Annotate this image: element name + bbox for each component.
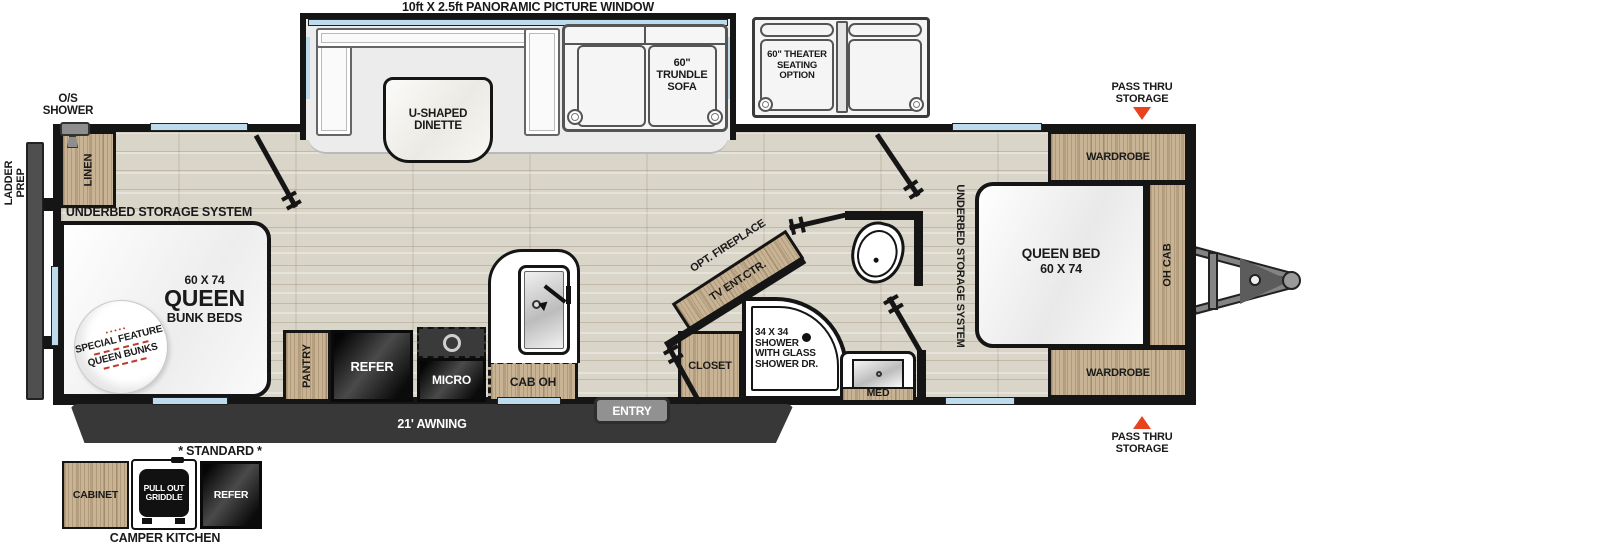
entry-step: ENTRY: [594, 397, 670, 424]
refrigerator: REFER: [331, 330, 413, 402]
underbed-storage-label-bedroom: UNDERBED STORAGE SYSTEM: [950, 180, 966, 352]
entry-label: ENTRY: [612, 404, 651, 418]
pass-thru-top-arrow-icon: [1133, 107, 1151, 120]
sofa-recline-knob-left: [567, 109, 583, 125]
pass-thru-top-label: PASS THRU STORAGE: [1090, 82, 1194, 105]
theater-seating: 60" THEATER SEATING OPTION: [752, 17, 930, 118]
theater-headrest-right: [848, 23, 922, 37]
bath-wall-top: [845, 211, 921, 220]
griddle-label: PULL OUT GRIDDLE: [144, 484, 185, 503]
panoramic-window-note: 10ft X 2.5ft PANORAMIC PICTURE WINDOW: [388, 0, 668, 14]
pull-out-griddle: PULL OUT GRIDDLE: [131, 459, 197, 530]
ck-refer-label: REFER: [214, 489, 249, 501]
wardrobe-label: WARDROBE: [1086, 367, 1150, 379]
sofa-label: 60" TRUNDLE SOFA: [649, 57, 715, 93]
faucet-icon: [566, 286, 571, 304]
med-label: MED: [843, 387, 913, 400]
overhead-cabinet-bedroom: OH CAB: [1147, 182, 1188, 348]
theater-headrest-left: [760, 23, 834, 37]
overhead-cabinet: CAB OH: [488, 361, 578, 402]
griddle-knob-icon: [171, 457, 184, 463]
wardrobe-rear: WARDROBE: [1048, 131, 1188, 183]
refer-label: REFER: [350, 359, 393, 374]
underbed-storage-label-bunk: UNDERBED STORAGE SYSTEM: [64, 205, 254, 219]
sofa-back-divider: [644, 27, 646, 43]
closet-label: CLOSET: [688, 360, 731, 372]
trundle-sofa: 60" TRUNDLE SOFA: [562, 24, 728, 132]
pass-thru-bottom-label: PASS THRU STORAGE: [1090, 432, 1194, 455]
shower-label: 34 X 34 SHOWER WITH GLASS SHOWER DR.: [755, 328, 839, 370]
dinette-label: U-SHAPED DINETTE: [398, 108, 478, 132]
pass-thru-bottom-arrow-icon: [1133, 416, 1151, 429]
rear-bumper: [26, 142, 44, 400]
bath-wall-bottom-right: [917, 350, 926, 405]
window: [51, 266, 59, 346]
bath-wall-right: [914, 211, 923, 286]
window: [952, 123, 1042, 131]
window: [150, 123, 248, 131]
awning: 21' AWNING: [70, 404, 794, 443]
linen-label: LINEN: [82, 153, 94, 186]
wardrobe-label: WARDROBE: [1086, 151, 1150, 163]
camper-kitchen-refer: REFER: [200, 461, 262, 529]
dinette-bench-right: [524, 28, 560, 136]
slide-window-left: [306, 37, 310, 99]
cooktop: [417, 327, 486, 358]
microwave: MICRO: [417, 358, 486, 402]
med-lavatory: MED: [840, 351, 916, 403]
window: [945, 397, 1015, 405]
dinette-table: U-SHAPED DINETTE: [383, 77, 493, 163]
window: [497, 397, 561, 405]
special-feature-badge: ••••• SPECIAL FEATURE QUEEN BUNKS: [74, 300, 168, 394]
theater-label: 60" THEATER SEATING OPTION: [765, 50, 829, 82]
burner-icon: [443, 334, 461, 352]
window: [152, 397, 228, 405]
slide-out: U-SHAPED DINETTE 60" TRUNDLE SOFA: [300, 13, 736, 140]
griddle-body: PULL OUT GRIDDLE: [139, 469, 189, 517]
pantry: PANTRY: [283, 330, 331, 402]
pantry-label: PANTRY: [301, 344, 313, 388]
tongue-crossbar: [1208, 252, 1218, 310]
griddle-foot-icon: [175, 518, 185, 524]
closet: CLOSET: [678, 331, 742, 400]
cabinet-label: CABINET: [73, 489, 118, 501]
tongue-plate-hole: [1249, 274, 1261, 286]
queen-bed-size: 60 X 74: [989, 262, 1133, 276]
sofa-cushion-left: [577, 45, 646, 127]
outside-shower-icon: [60, 122, 90, 136]
camper-kitchen-title: CAMPER KITCHEN: [85, 531, 245, 545]
oh-cab-label: OH CAB: [1162, 243, 1174, 286]
awning-label: 21' AWNING: [397, 417, 466, 431]
outside-shower-label: O/S SHOWER: [25, 93, 111, 117]
cab-oh-label: CAB OH: [510, 375, 556, 389]
camper-kitchen-cabinet: CABINET: [62, 461, 129, 529]
queen-bed: QUEEN BED 60 X 74: [975, 182, 1147, 348]
sofa-recline-knob-right: [707, 109, 723, 125]
lav-drain-icon: [876, 371, 882, 377]
theater-console: [836, 21, 848, 113]
bunk-name-label: QUEEN: [134, 285, 275, 312]
theater-knob-left: [758, 97, 773, 112]
theater-knob-right: [909, 97, 924, 112]
standard-note: * STANDARD *: [140, 444, 300, 458]
micro-label: MICRO: [432, 373, 471, 387]
griddle-foot-icon: [142, 518, 152, 524]
queen-bed-label: QUEEN BED: [989, 246, 1133, 261]
wardrobe-front: WARDROBE: [1048, 347, 1188, 398]
hitch-coupler-icon: [1282, 271, 1301, 290]
floorplan: 10ft X 2.5ft PANORAMIC PICTURE WINDOW U-…: [0, 0, 1600, 554]
